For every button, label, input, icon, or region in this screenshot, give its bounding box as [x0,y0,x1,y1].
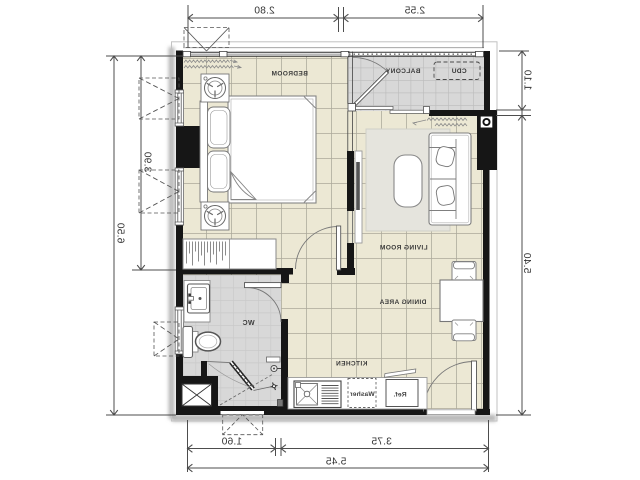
svg-text:BEDROOM: BEDROOM [271,71,308,78]
svg-text:6.50: 6.50 [115,223,126,244]
svg-text:Ref.: Ref. [393,392,406,399]
svg-text:WC: WC [242,320,254,327]
svg-text:3.75: 3.75 [371,436,392,447]
svg-text:5.40: 5.40 [521,253,532,274]
svg-text:LIVING ROOM: LIVING ROOM [380,245,428,252]
svg-text:KITCHEN: KITCHEN [336,361,368,368]
svg-text:1.60: 1.60 [221,436,242,447]
svg-text:BALCONY: BALCONY [385,68,420,75]
svg-text:2.55: 2.55 [404,6,425,17]
svg-text:CDU: CDU [451,68,466,75]
svg-text:DINING AREA: DINING AREA [379,299,426,306]
svg-text:2.80: 2.80 [254,6,275,17]
svg-text:1.10: 1.10 [521,70,532,91]
svg-text:5.45: 5.45 [326,457,347,468]
svg-text:3.90: 3.90 [142,152,153,173]
svg-text:Washer: Washer [350,391,375,398]
